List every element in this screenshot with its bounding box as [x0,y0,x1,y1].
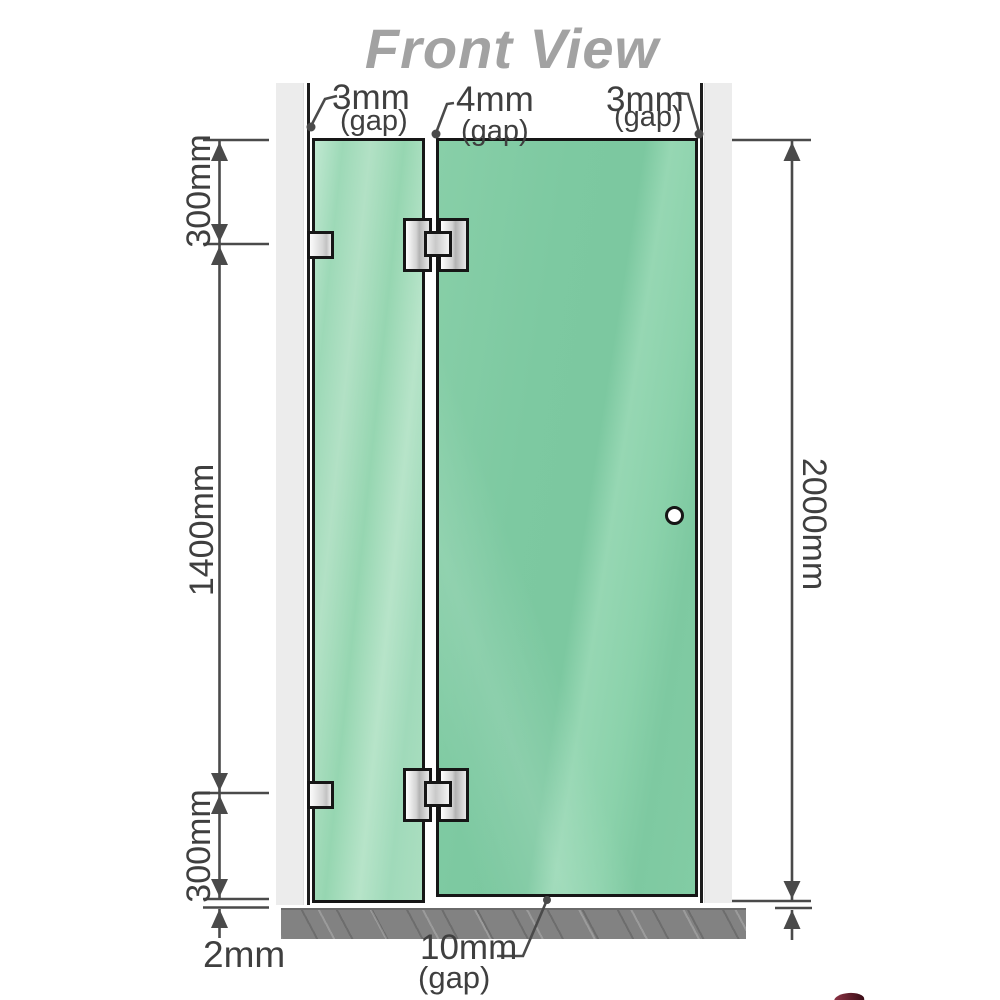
dimension-arrowheads [211,142,801,929]
dimension-label-300mm-bottom: 300mm [180,786,218,906]
gap-suffix-top-right: (gap) [614,103,682,132]
gap-label-top-middle: 4mm [456,82,534,117]
dimension-label-1400mm: 1400mm [183,460,221,600]
leader-lines [311,93,699,956]
dimension-label-2000mm: 2000mm [795,454,833,594]
dimension-label-2mm: 2mm [203,936,285,973]
gap-suffix-top-left: (gap) [340,107,408,136]
dimension-label-300mm-top: 300mm [180,131,218,251]
gap-suffix-bottom: (gap) [418,962,490,993]
gap-suffix-top-middle: (gap) [461,117,529,146]
dimension-lines [0,0,1000,1000]
leader-dots [307,123,704,905]
shower-screen-front-view-diagram: Front View [0,0,1000,1000]
